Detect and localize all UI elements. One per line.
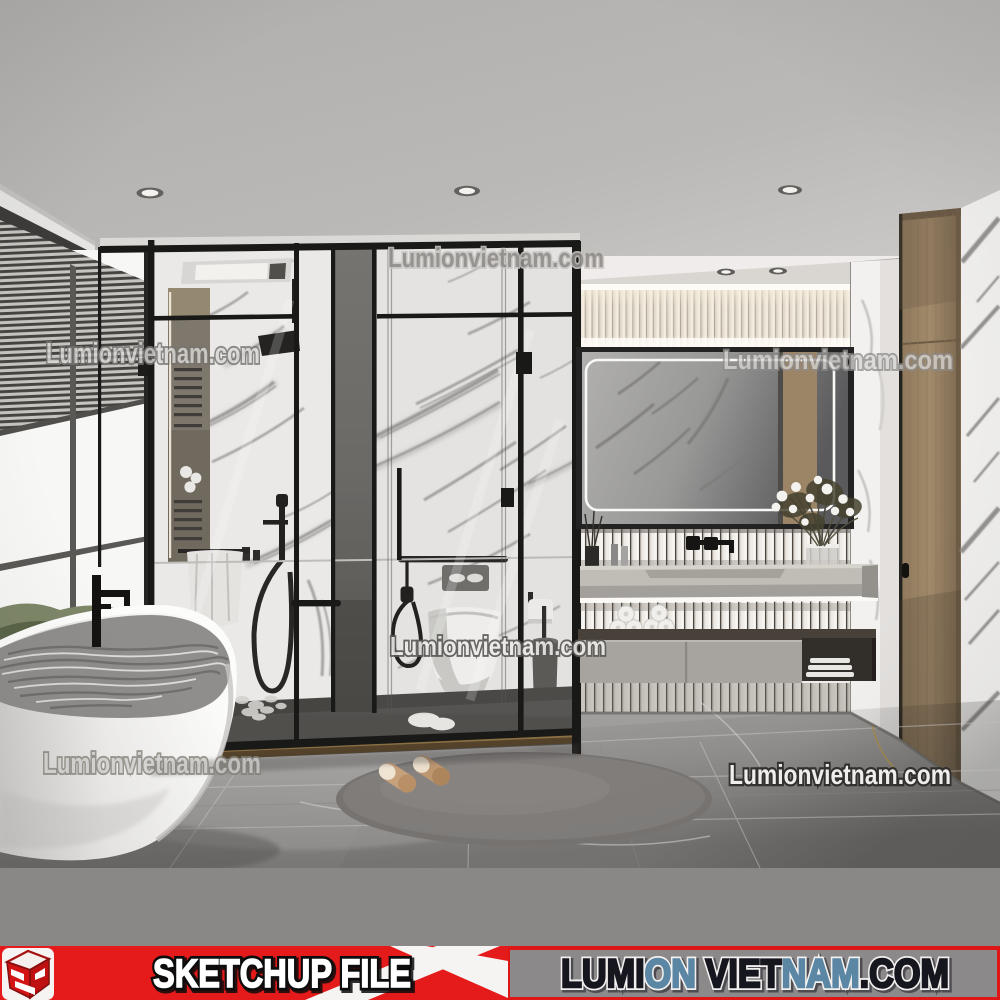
svg-text:LUMION VIETNAM.COM: LUMION VIETNAM.COM [561, 952, 949, 996]
svg-text:Lumionvietnam.com: Lumionvietnam.com [388, 243, 604, 273]
svg-text:SKETCHUP FILE: SKETCHUP FILE [153, 952, 411, 996]
svg-text:Lumionvietnam.com: Lumionvietnam.com [723, 345, 953, 375]
svg-text:Lumionvietnam.com: Lumionvietnam.com [46, 338, 260, 370]
svg-text:Lumionvietnam.com: Lumionvietnam.com [729, 759, 951, 790]
svg-text:Lumionvietnam.com: Lumionvietnam.com [43, 748, 261, 780]
svg-text:Lumionvietnam.com: Lumionvietnam.com [390, 631, 606, 661]
